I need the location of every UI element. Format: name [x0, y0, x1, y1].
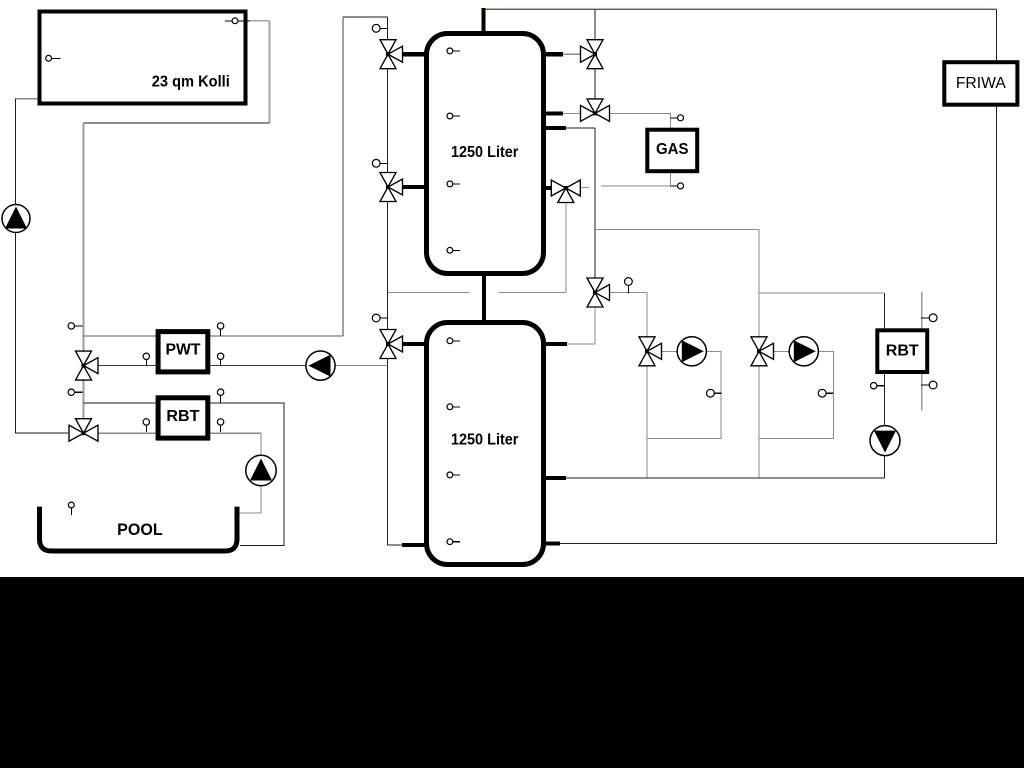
svg-text:RBT: RBT [166, 408, 199, 425]
svg-text:1250 Liter: 1250 Liter [451, 144, 519, 161]
svg-text:RBT: RBT [886, 342, 919, 359]
svg-text:23 qm Kolli: 23 qm Kolli [152, 73, 230, 90]
svg-text:1250 Liter: 1250 Liter [451, 432, 519, 449]
svg-text:PWT: PWT [165, 342, 200, 359]
svg-text:POOL: POOL [117, 521, 163, 539]
svg-text:GAS: GAS [656, 141, 689, 158]
svg-text:FRIWA: FRIWA [956, 75, 1006, 92]
